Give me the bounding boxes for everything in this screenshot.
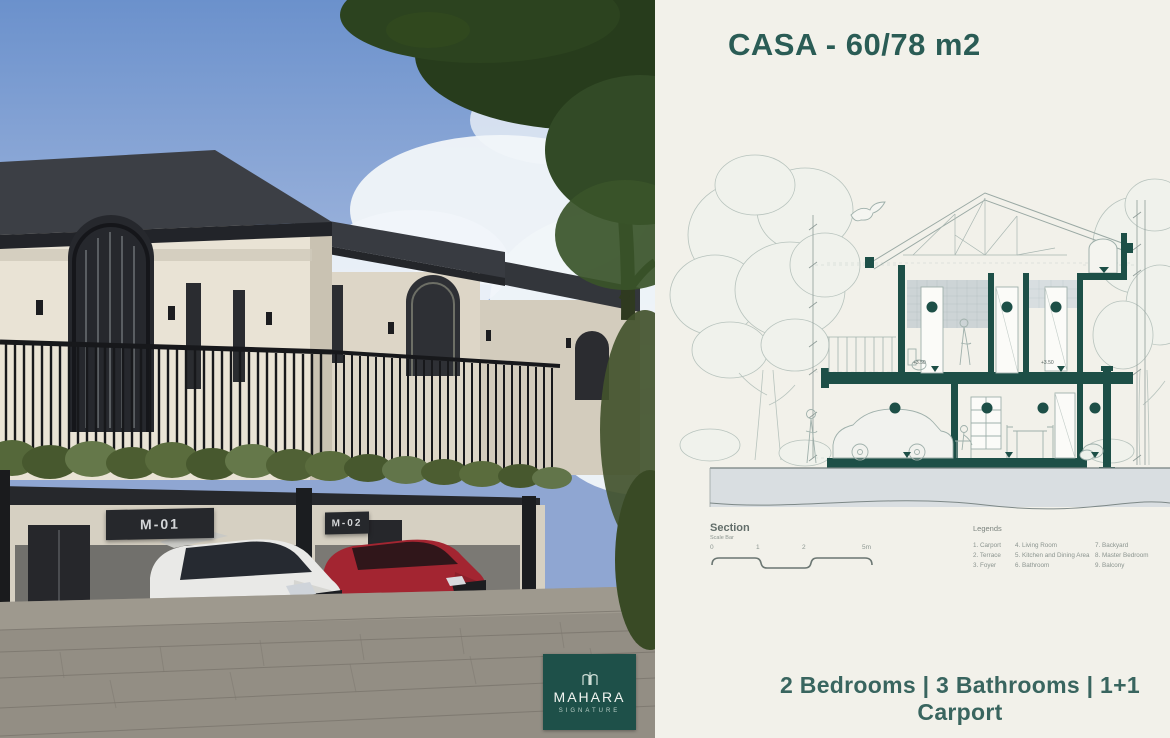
unit-sign-label: M-01 [140, 516, 180, 533]
slot-window [186, 283, 201, 389]
level-label: +3.50 [1041, 360, 1054, 366]
legend-item: 7. Backyard [1095, 541, 1170, 551]
legend-column-1: 1. Carport 2. Terrace 3. Foyer [973, 541, 1015, 571]
page-title: CASA - 60/78 m2 [728, 27, 981, 63]
legend-item: 8. Master Bedroom [1095, 551, 1170, 561]
brand-name: MAHARA [554, 689, 626, 705]
spec-summary: 2 Bedrooms | 3 Bathrooms | 1+1 Carport [745, 672, 1170, 726]
brochure-page: M-01 M-02 MAHARA SIGNATURE CASA - 60/78 … [0, 0, 1170, 738]
section-drawing: +3.50 +3.50 [655, 115, 1170, 525]
ground-interior [833, 393, 1103, 460]
legend-column-2: 4. Living Room 5. Kitchen and Dining Are… [1015, 541, 1095, 571]
brand-badge: MAHARA SIGNATURE [543, 654, 636, 730]
scale-tick-1: 1 [756, 544, 760, 551]
legend-item: 9. Balcony [1095, 561, 1170, 571]
legend-item: 4. Living Room [1015, 541, 1095, 551]
legend-column-3: 7. Backyard 8. Master Bedroom 9. Balcony [1095, 541, 1170, 571]
legend-item: 6. Bathroom [1015, 561, 1095, 571]
tree-sketch-left [670, 155, 860, 466]
info-panel: CASA - 60/78 m2 [655, 0, 1170, 738]
legend-item: 5. Kitchen and Dining Area [1015, 551, 1095, 561]
scale-ticks: 0 1 2 5m [710, 544, 890, 553]
brand-tagline: SIGNATURE [559, 708, 621, 714]
bird-sketch [851, 202, 885, 221]
legend-item: 1. Carport [973, 541, 1015, 551]
scale-tick-2: 2 [802, 544, 806, 551]
balcony-sketch [827, 337, 896, 372]
legend-block: Legends 1. Carport 2. Terrace 3. Foyer 4… [973, 524, 1170, 571]
level-label: +3.50 [913, 360, 926, 366]
scale-bar-block: Section Scale Bar 0 1 2 5m [710, 522, 890, 569]
legend-item: 2. Terrace [973, 551, 1015, 561]
ground-band [710, 468, 1170, 509]
unit-sign-label: M-02 [332, 517, 363, 529]
scale-tick-0: 0 [710, 544, 714, 551]
scale-tick-5m: 5m [862, 544, 871, 551]
scale-bar [710, 553, 880, 569]
water-tank [1089, 239, 1117, 273]
scale-bar-label: Scale Bar [710, 535, 890, 541]
mahara-monogram-icon [582, 671, 598, 686]
exterior-photo [0, 0, 655, 738]
legend-title: Legends [973, 524, 1170, 533]
unit-sign-m01: M-01 [106, 508, 214, 540]
unit-sign-m02: M-02 [325, 512, 369, 535]
legend-item: 3. Foyer [973, 561, 1015, 571]
exterior-photo-panel: M-01 M-02 MAHARA SIGNATURE [0, 0, 655, 738]
section-label: Section [710, 522, 890, 534]
tree-sketch-right [1086, 179, 1170, 465]
